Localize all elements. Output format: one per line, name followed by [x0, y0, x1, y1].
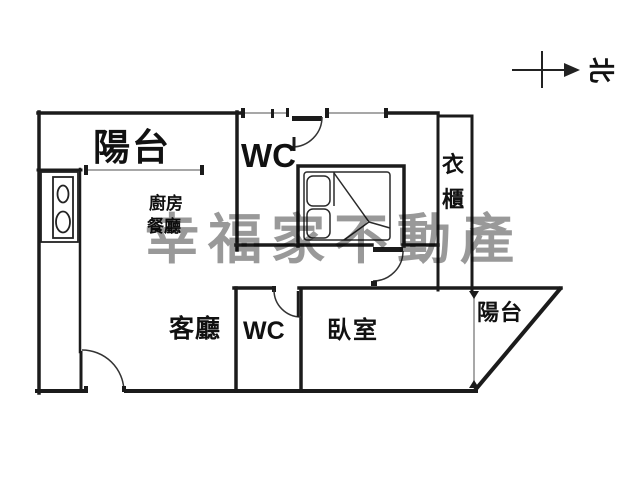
door-bedroom-tick: [371, 281, 377, 286]
bed-pillow-1: [307, 176, 330, 206]
door-top: [292, 116, 322, 151]
room-label-wardrobe: 衣櫃: [442, 147, 468, 217]
floor-plan: 陽台 WC 衣櫃 廚房 餐廳 客廳 WC 臥室 陽台 北 幸福家不動產: [0, 0, 640, 480]
watermark: 幸福家不動產: [145, 213, 523, 267]
room-label-bedroom: 臥室: [327, 319, 379, 343]
door-top-arc: [292, 117, 322, 147]
door-entry-arc: [82, 350, 124, 391]
north-arrow-icon: [512, 51, 580, 88]
door-entry: [81, 350, 126, 392]
room-label-balcony-top: 陽台: [93, 129, 171, 166]
room-label-wc-bottom: WC: [243, 319, 285, 344]
room-label-living-room: 客廳: [169, 317, 221, 342]
stove-burner-2: [56, 212, 70, 233]
room-label-balcony-right: 陽台: [477, 302, 523, 324]
stove: [41, 172, 78, 242]
room-label-wc-top: WC: [241, 139, 296, 172]
north-label: 北: [588, 57, 614, 83]
stove-burner-1: [58, 186, 69, 203]
door-top-panel: [292, 116, 322, 121]
north-arrow-head: [564, 63, 580, 77]
door-wc: [274, 290, 301, 317]
